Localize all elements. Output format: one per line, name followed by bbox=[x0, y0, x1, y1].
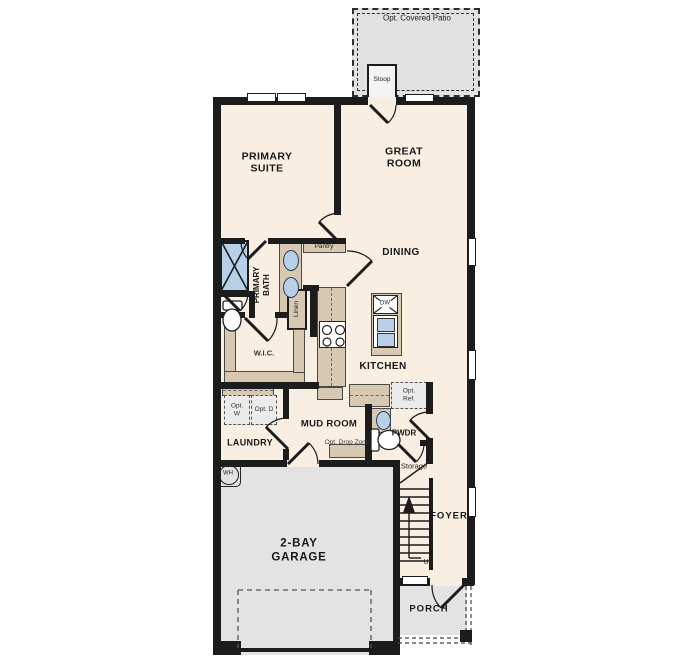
room-label-dining: DINING bbox=[382, 247, 419, 259]
wall bbox=[426, 382, 433, 414]
window bbox=[405, 94, 434, 102]
window bbox=[277, 93, 306, 102]
window bbox=[468, 350, 476, 380]
room-label-foyer: FOYER bbox=[430, 510, 468, 521]
wall bbox=[393, 467, 400, 655]
floor-plan: Opt. Covered Patio Stoop PRIMARY SUITE G… bbox=[0, 0, 687, 661]
room-label-primary-suite: PRIMARY SUITE bbox=[228, 151, 306, 176]
window bbox=[468, 487, 476, 517]
opt-dryer-label: Opt. D bbox=[254, 406, 274, 414]
pantry-label: Pantry bbox=[315, 243, 334, 251]
window bbox=[402, 576, 428, 585]
wall bbox=[334, 105, 341, 215]
wall bbox=[369, 641, 400, 655]
room-label-porch: PORCH bbox=[409, 603, 448, 614]
linen-label: Linen bbox=[293, 301, 301, 317]
room-label-wic: W.I.C. bbox=[254, 350, 274, 359]
door-opening bbox=[430, 578, 462, 586]
patio-label: Opt. Covered Patio bbox=[362, 13, 472, 22]
room-label-pwdr: PWDR bbox=[392, 428, 416, 437]
wall bbox=[219, 312, 245, 318]
wic-shelf-right bbox=[293, 329, 305, 373]
garage-door-sill bbox=[239, 648, 371, 652]
room-label-garage: 2-BAY GARAGE bbox=[259, 537, 339, 564]
mudroom-cubby bbox=[317, 387, 343, 400]
wall bbox=[310, 291, 317, 337]
wall bbox=[219, 291, 252, 297]
wall bbox=[283, 389, 289, 419]
room-label-mud-room: MUD ROOM bbox=[301, 418, 357, 429]
stoop-label: Stoop bbox=[374, 76, 391, 84]
window bbox=[247, 93, 276, 102]
vanity-sink-1 bbox=[283, 250, 299, 271]
vanity-sink-2 bbox=[283, 277, 299, 298]
wall bbox=[213, 97, 221, 648]
shower bbox=[220, 240, 249, 292]
wall bbox=[268, 238, 346, 244]
window bbox=[468, 238, 476, 266]
opt-ref-label: Opt. Ref. bbox=[398, 387, 420, 402]
up-label: Up bbox=[424, 559, 433, 567]
wall bbox=[365, 404, 372, 462]
wall bbox=[219, 238, 245, 244]
porch-post bbox=[460, 630, 472, 642]
wall bbox=[219, 382, 319, 389]
wall bbox=[420, 440, 433, 446]
opt-washer-label: Opt. W bbox=[227, 402, 247, 417]
pwdr-sink bbox=[376, 411, 391, 430]
room-label-kitchen: KITCHEN bbox=[359, 361, 406, 373]
room-label-great-room: GREAT ROOM bbox=[374, 146, 434, 171]
dishwasher-label: DW bbox=[379, 300, 391, 307]
island-sink bbox=[373, 315, 398, 348]
door-opening bbox=[368, 97, 396, 105]
water-heater-label: WH bbox=[223, 470, 233, 477]
storage-label: Storage bbox=[401, 463, 427, 472]
wall bbox=[213, 641, 241, 655]
room-label-primary-bath: PRIMARY BATH bbox=[252, 262, 272, 308]
drop-zone-label: Opt. Drop Zone bbox=[323, 439, 371, 447]
room-label-laundry: LAUNDRY bbox=[227, 438, 273, 449]
door-opening bbox=[287, 460, 319, 467]
wall bbox=[275, 312, 289, 318]
range bbox=[319, 321, 346, 348]
stair-rail bbox=[429, 478, 433, 570]
